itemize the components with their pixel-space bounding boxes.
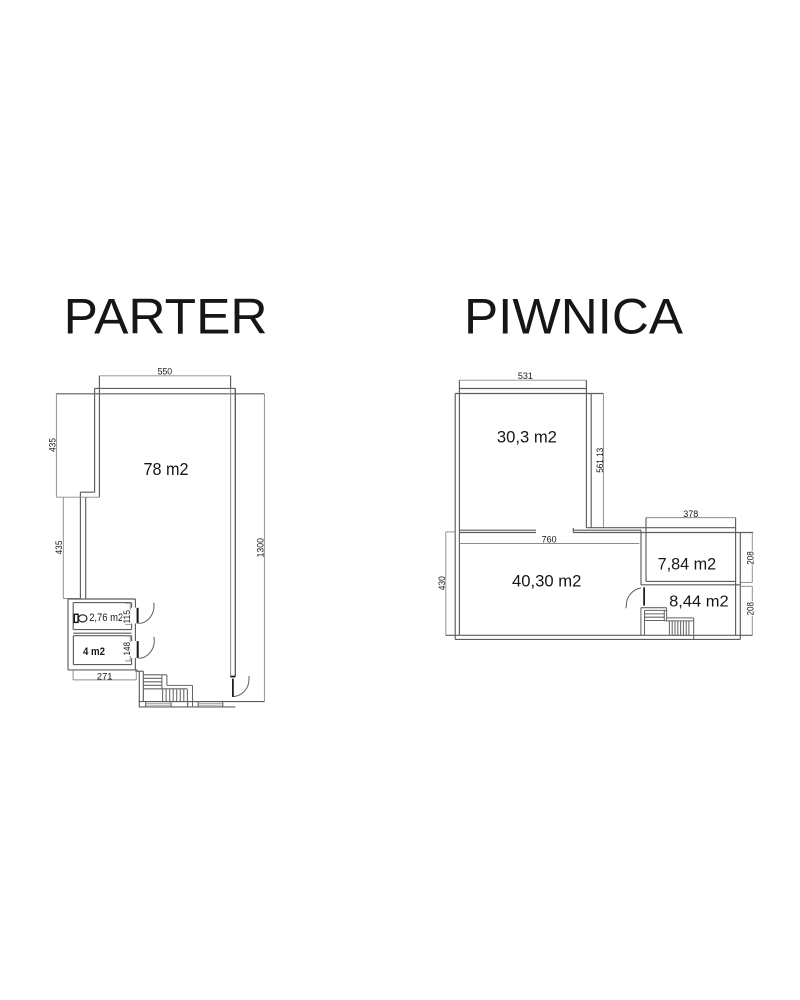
svg-text:7,84 m2: 7,84 m2 bbox=[658, 555, 717, 574]
svg-text:760: 760 bbox=[542, 535, 557, 545]
svg-text:78 m2: 78 m2 bbox=[144, 459, 189, 479]
svg-text:8,44 m2: 8,44 m2 bbox=[669, 594, 729, 611]
svg-text:561.13: 561.13 bbox=[595, 448, 605, 473]
svg-text:550: 550 bbox=[158, 367, 173, 377]
svg-text:271: 271 bbox=[97, 671, 113, 681]
svg-text:1300: 1300 bbox=[255, 538, 265, 558]
svg-text:430: 430 bbox=[437, 576, 447, 590]
svg-text:378: 378 bbox=[683, 509, 698, 519]
svg-text:148: 148 bbox=[122, 642, 132, 656]
svg-text:30,3 m2: 30,3 m2 bbox=[497, 428, 557, 446]
svg-text:4 m2: 4 m2 bbox=[83, 646, 105, 658]
svg-text:208: 208 bbox=[745, 551, 755, 565]
svg-text:115: 115 bbox=[122, 610, 132, 624]
svg-text:531: 531 bbox=[518, 371, 533, 381]
svg-text:PARTER: PARTER bbox=[64, 288, 268, 345]
svg-text:435: 435 bbox=[54, 540, 64, 554]
svg-text:PIWNICA: PIWNICA bbox=[464, 288, 683, 345]
svg-text:40,30 m2: 40,30 m2 bbox=[512, 571, 582, 590]
svg-text:2,76 m2: 2,76 m2 bbox=[89, 612, 123, 624]
svg-text:208: 208 bbox=[745, 602, 755, 616]
svg-text:435: 435 bbox=[47, 438, 57, 452]
